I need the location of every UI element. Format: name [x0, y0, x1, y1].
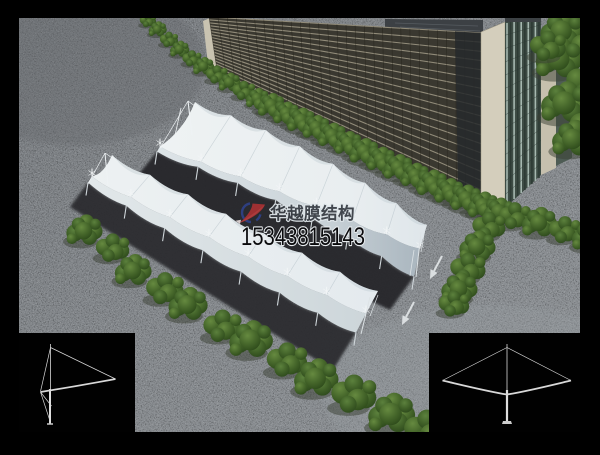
- svg-text:15343815143: 15343815143: [241, 223, 365, 251]
- svg-text:华越膜结构: 华越膜结构: [270, 203, 355, 223]
